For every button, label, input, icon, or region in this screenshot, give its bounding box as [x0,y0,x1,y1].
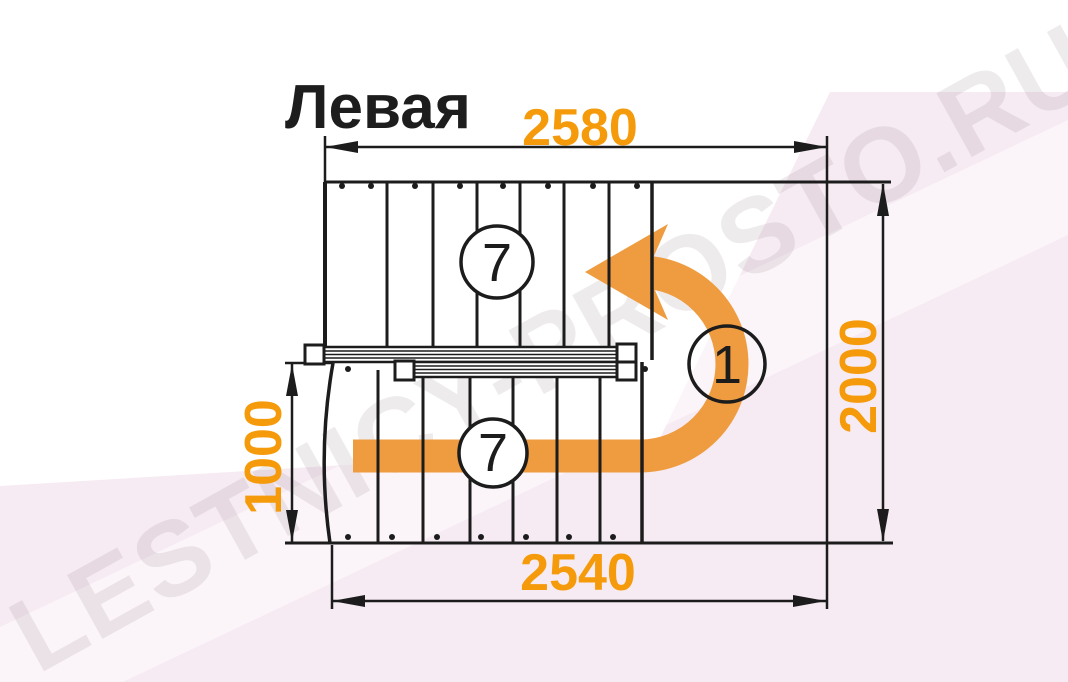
fastener-dot [478,534,484,540]
fastener-dot [590,183,596,189]
staircase-plan-drawing: LESTNICY-PROSTO.RU [0,0,1068,682]
post-cap [617,362,636,380]
fastener-dot [500,183,506,189]
dimension-right-value: 2000 [830,318,888,434]
landing-count-label: 1 [712,335,742,395]
fastener-dot [412,183,418,189]
page-title: Левая [285,73,471,142]
fastener-dot [610,534,616,540]
fastener-dot [523,534,529,540]
fastener-dot [642,366,648,372]
post-cap [305,345,324,364]
fastener-dot [545,183,551,189]
post-cap [395,361,414,380]
dimension-top-value: 2580 [522,99,638,157]
lower-flight-count-label: 7 [478,423,508,483]
post-cap [617,344,636,362]
fastener-dot [339,183,345,189]
dimension-left-value: 1000 [235,399,293,515]
fastener-dot [345,534,351,540]
fastener-dot [389,534,395,540]
fastener-dot [634,183,640,189]
dimension-bottom-value: 2540 [520,544,636,602]
upper-flight-count-label: 7 [482,233,512,293]
fastener-dot [434,534,440,540]
fastener-dot [345,366,351,372]
fastener-dot [368,183,374,189]
fastener-dot [566,534,572,540]
fastener-dot [457,183,463,189]
staircase-plan-page: LESTNICY-PROSTO.RU [0,0,1068,682]
